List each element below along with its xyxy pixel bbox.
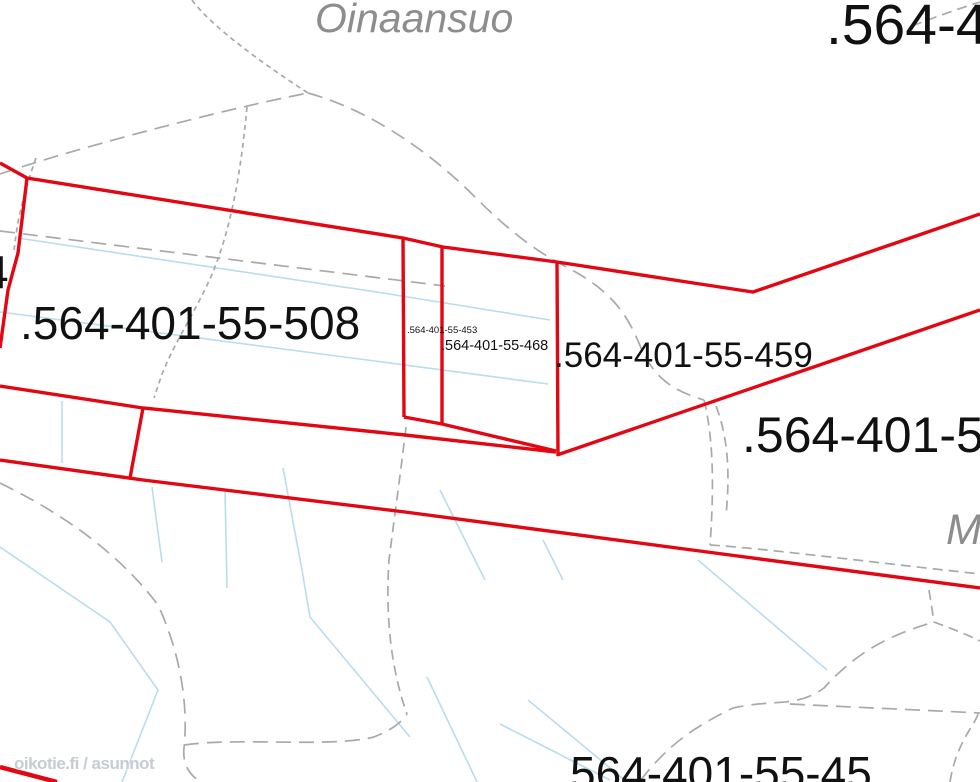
watermark-oikotie: oikotie.fi / asunnot: [14, 755, 154, 772]
parcel-label-top-right: .564-4: [826, 0, 980, 54]
parcel-boundary-lines: [0, 163, 980, 782]
parcel-label-left-edge: 4: [0, 249, 9, 295]
parcel-label-bottom-partial: 564-401-55-45: [570, 750, 872, 782]
place-label-oinaansuo: Oinaansuo: [315, 0, 513, 39]
map-line-work: [0, 0, 980, 782]
contour-lines: [0, 0, 980, 782]
parcel-label-508: .564-401-55-508: [20, 300, 360, 346]
parcel-label-459: .564-401-55-459: [554, 338, 813, 373]
cadastral-map: Oinaansuo M .564-4 4 .564-401-55-508 .56…: [0, 0, 980, 782]
parcel-label-right-partial: .564-401-5: [742, 410, 980, 460]
place-label-right-edge: M: [946, 509, 980, 552]
parcel-label-453: .564-401-55-453: [407, 326, 477, 336]
parcel-label-468: .564-401-55-468: [441, 339, 548, 354]
